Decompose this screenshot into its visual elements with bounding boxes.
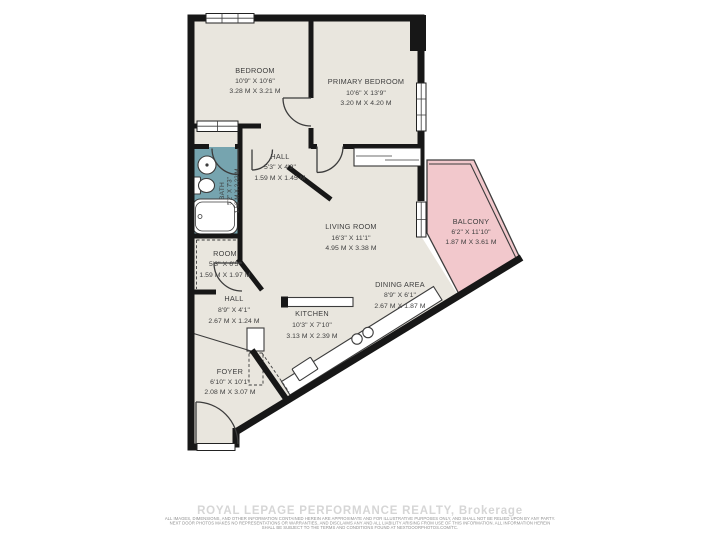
svg-text:HALL: HALL bbox=[224, 294, 243, 303]
window-top bbox=[206, 14, 254, 24]
bedroom-closet bbox=[197, 121, 238, 132]
svg-text:ROOM: ROOM bbox=[213, 249, 237, 258]
svg-text:3.20 M X 4.20 M: 3.20 M X 4.20 M bbox=[340, 100, 392, 107]
wall-corner-jut bbox=[410, 15, 426, 51]
svg-text:2.08 M X 3.07 M: 2.08 M X 3.07 M bbox=[204, 389, 256, 396]
kitchen-sink-bowl-1 bbox=[352, 334, 362, 344]
label-balcony: BALCONY 6'2" X 11'10" 1.87 M X 3.61 M bbox=[445, 217, 497, 246]
kitchen-peninsula-endcap bbox=[281, 297, 288, 308]
svg-text:16'3" X 11'1": 16'3" X 11'1" bbox=[331, 235, 371, 242]
label-bedroom: BEDROOM 10'9" X 10'6" 3.28 M X 3.21 M bbox=[229, 66, 281, 95]
footer: ROYAL LEPAGE PERFORMANCE REALTY, Brokera… bbox=[165, 505, 555, 530]
svg-text:8'9" X 6'1": 8'9" X 6'1" bbox=[384, 292, 416, 299]
floorplan-canvas: BEDROOM 10'9" X 10'6" 3.28 M X 3.21 M PR… bbox=[0, 0, 720, 540]
svg-text:1.58 M X 2.22 M: 1.58 M X 2.22 M bbox=[234, 169, 241, 214]
svg-text:4.95 M X 3.38 M: 4.95 M X 3.38 M bbox=[325, 245, 377, 252]
svg-text:3.13 M X 2.39 M: 3.13 M X 2.39 M bbox=[286, 333, 338, 340]
disclaimer-line-3: SHALL BE SUBJECT TO THE TERMS AND CONDIT… bbox=[262, 525, 458, 530]
window-right bbox=[417, 83, 427, 131]
svg-text:KITCHEN: KITCHEN bbox=[295, 309, 329, 318]
kitchen-sink-bowl-2 bbox=[363, 327, 373, 337]
svg-text:BATH: BATH bbox=[219, 182, 226, 200]
kitchen-counter-left bbox=[247, 328, 264, 351]
kitchen-peninsula bbox=[286, 298, 353, 307]
svg-text:5'3" X 6'5": 5'3" X 6'5" bbox=[209, 261, 241, 268]
label-living-room: LIVING ROOM 16'3" X 11'1" 4.95 M X 3.38 … bbox=[325, 222, 377, 252]
svg-text:HALL: HALL bbox=[270, 152, 289, 161]
entry-door-threshold bbox=[197, 444, 235, 451]
svg-text:1.59 M X 1.97 M: 1.59 M X 1.97 M bbox=[199, 272, 251, 279]
svg-text:BALCONY: BALCONY bbox=[453, 217, 490, 226]
svg-text:1.87 M X 3.61 M: 1.87 M X 3.61 M bbox=[445, 239, 497, 246]
svg-text:5'2" X 7'3": 5'2" X 7'3" bbox=[227, 177, 234, 205]
svg-text:5'3" X 4'9": 5'3" X 4'9" bbox=[264, 164, 296, 171]
svg-text:2.67 M X 1.24 M: 2.67 M X 1.24 M bbox=[208, 318, 260, 325]
svg-text:6'10" X 10'1": 6'10" X 10'1" bbox=[210, 379, 250, 386]
primary-closet-sliding-doors bbox=[354, 148, 421, 166]
svg-text:1.59 M X 1.45 M: 1.59 M X 1.45 M bbox=[254, 175, 306, 182]
svg-text:LIVING ROOM: LIVING ROOM bbox=[325, 222, 376, 231]
svg-text:10'9" X 10'6": 10'9" X 10'6" bbox=[235, 78, 275, 85]
bath-sink-drain bbox=[205, 163, 208, 166]
svg-text:FOYER: FOYER bbox=[217, 367, 243, 376]
svg-text:3.28 M X 3.21 M: 3.28 M X 3.21 M bbox=[229, 88, 281, 95]
floorplan-page: BEDROOM 10'9" X 10'6" 3.28 M X 3.21 M PR… bbox=[0, 0, 720, 540]
svg-text:BEDROOM: BEDROOM bbox=[235, 66, 274, 75]
svg-text:2.67 M X 1.87 M: 2.67 M X 1.87 M bbox=[374, 303, 426, 310]
svg-text:PRIMARY BEDROOM: PRIMARY BEDROOM bbox=[328, 77, 404, 86]
svg-text:6'2" X 11'10": 6'2" X 11'10" bbox=[451, 229, 491, 236]
balcony-door-windows bbox=[417, 202, 427, 237]
svg-text:10'6" X 13'9": 10'6" X 13'9" bbox=[346, 90, 386, 97]
toilet-bowl bbox=[199, 179, 215, 193]
svg-text:10'3" X 7'10": 10'3" X 7'10" bbox=[292, 322, 332, 329]
svg-text:DINING AREA: DINING AREA bbox=[375, 280, 425, 289]
svg-text:8'9" X 4'1": 8'9" X 4'1" bbox=[218, 307, 250, 314]
